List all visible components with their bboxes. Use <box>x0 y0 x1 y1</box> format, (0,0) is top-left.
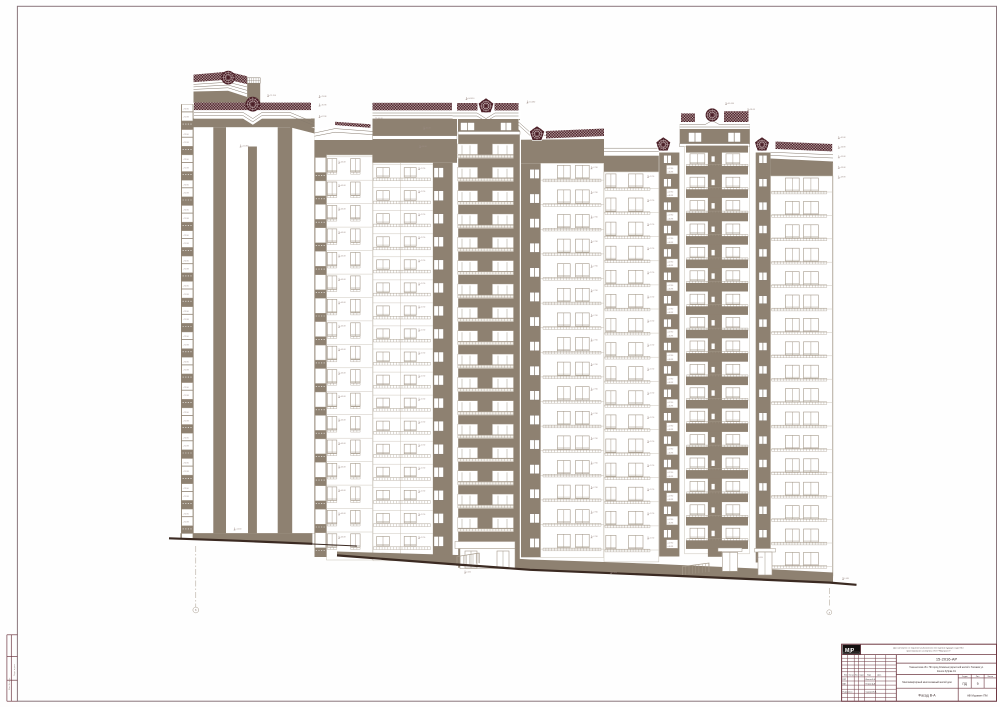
svg-text:+47.90: +47.90 <box>667 379 673 381</box>
svg-text:+43.08: +43.08 <box>340 279 346 281</box>
svg-text:+72.90: +72.90 <box>183 362 190 364</box>
svg-text:+2.700: +2.700 <box>593 389 598 391</box>
svg-text:+71.98: +71.98 <box>183 370 190 372</box>
svg-text:Петров Д.А.: Петров Д.А. <box>866 682 876 685</box>
svg-text:+2.700: +2.700 <box>593 216 598 218</box>
svg-text:Данный чертеж не подлежит разм: Данный чертеж не подлежит размножению бе… <box>893 646 964 649</box>
svg-text:+53.08: +53.08 <box>840 167 846 169</box>
svg-text:Кошли Зубрва Ол: Кошли Зубрва Ол <box>937 671 957 673</box>
svg-text:+70.98: +70.98 <box>321 104 327 106</box>
svg-text:+61.080: +61.080 <box>528 101 535 103</box>
svg-text:+2.700: +2.700 <box>420 306 425 308</box>
svg-text:№док: №док <box>859 674 864 677</box>
svg-text:+2.700: +2.700 <box>593 167 598 169</box>
svg-text:+2.700: +2.700 <box>593 339 598 341</box>
svg-text:+71.98: +71.98 <box>183 522 190 524</box>
svg-text:+2.700: +2.700 <box>420 399 425 401</box>
svg-text:+2.700: +2.700 <box>420 329 425 331</box>
svg-text:+46.98: +46.98 <box>667 499 673 501</box>
svg-text:проектирования экспертизы ООО: проектирования экспертизы ООО «Мирпроект… <box>906 651 951 653</box>
svg-text:М|Р: М|Р <box>845 648 855 654</box>
svg-text:+46.98: +46.98 <box>667 523 673 525</box>
svg-text:+72.90: +72.90 <box>183 513 190 515</box>
svg-text:+47.90: +47.90 <box>667 542 673 544</box>
svg-text:+43.08: +43.08 <box>340 443 346 445</box>
svg-text:+2.700: +2.700 <box>649 513 654 515</box>
svg-text:Стадия: Стадия <box>962 676 968 678</box>
svg-text:+46.98: +46.98 <box>667 406 673 408</box>
svg-text:+47.90: +47.90 <box>667 191 673 193</box>
svg-text:+43.08: +43.08 <box>340 255 346 257</box>
svg-text:Иванов Б.Б.: Иванов Б.Б. <box>866 679 877 681</box>
svg-text:+61.08: +61.08 <box>425 127 431 129</box>
svg-text:+72.90: +72.90 <box>183 235 190 237</box>
svg-text:-0.850: -0.850 <box>612 572 617 574</box>
svg-text:+2.700: +2.700 <box>593 462 598 464</box>
svg-text:+72.90: +72.90 <box>183 437 190 439</box>
svg-text:+2.700: +2.700 <box>649 224 654 226</box>
svg-text:+2.700: +2.700 <box>593 266 598 268</box>
svg-text:+46.98: +46.98 <box>667 546 673 548</box>
svg-text:+46.98: +46.98 <box>667 172 673 174</box>
svg-text:+2.700: +2.700 <box>649 465 654 467</box>
svg-text:+71.98: +71.98 <box>183 446 190 448</box>
svg-text:+67.98: +67.98 <box>321 116 327 118</box>
svg-text:+58.08: +58.08 <box>421 146 427 148</box>
svg-text:+47.90: +47.90 <box>667 355 673 357</box>
svg-text:+71.98: +71.98 <box>183 294 190 296</box>
svg-text:Многоквартирный многоэтажный ж: Многоквартирный многоэтажный жилой дом <box>902 681 952 684</box>
svg-text:+64.08: +64.08 <box>377 118 383 120</box>
svg-text:+47.90: +47.90 <box>667 285 673 287</box>
svg-text:+43.08: +43.08 <box>340 419 346 421</box>
svg-text:+46.98: +46.98 <box>667 312 673 314</box>
svg-text:+47.90: +47.90 <box>667 425 673 427</box>
svg-text:+2.700: +2.700 <box>593 487 598 489</box>
svg-text:Лист: Лист <box>976 676 980 678</box>
svg-text:+43.08: +43.08 <box>340 302 346 304</box>
svg-text:+2.700: +2.700 <box>649 345 654 347</box>
svg-text:+46.98: +46.98 <box>667 195 673 197</box>
svg-text:+71.98: +71.98 <box>183 243 190 245</box>
svg-text:+71.98: +71.98 <box>183 344 190 346</box>
svg-text:+71.98: +71.98 <box>183 420 190 422</box>
svg-text:+47.90: +47.90 <box>667 519 673 521</box>
svg-text:+56.98: +56.98 <box>840 147 846 149</box>
svg-text:+2.700: +2.700 <box>649 393 654 395</box>
svg-text:9: 9 <box>977 682 979 686</box>
svg-text:+2.700: +2.700 <box>649 441 654 443</box>
svg-text:+55.08: +55.08 <box>840 156 846 158</box>
svg-text:+43.08: +43.08 <box>340 349 346 351</box>
svg-text:+2.700: +2.700 <box>593 438 598 440</box>
svg-text:+72.90: +72.90 <box>183 109 190 111</box>
svg-text:+2.700: +2.700 <box>593 290 598 292</box>
svg-text:+46.98: +46.98 <box>667 335 673 337</box>
svg-text:+46.98: +46.98 <box>667 242 673 244</box>
svg-text:+71.98: +71.98 <box>183 167 190 169</box>
svg-text:+47.90: +47.90 <box>667 215 673 217</box>
svg-text:+71.98: +71.98 <box>183 117 190 119</box>
svg-text:Кол.уч: Кол.уч <box>849 675 854 677</box>
svg-text:+47.90: +47.90 <box>667 402 673 404</box>
svg-text:+47.90: +47.90 <box>667 332 673 334</box>
svg-text:+47.90: +47.90 <box>667 496 673 498</box>
svg-text:+2.700: +2.700 <box>649 320 654 322</box>
svg-text:+73.08: +73.08 <box>321 96 327 98</box>
svg-text:+71.98: +71.98 <box>183 471 190 473</box>
svg-text:+2.700: +2.700 <box>593 413 598 415</box>
svg-text:+2.700: +2.700 <box>649 537 654 539</box>
svg-text:+2.700: +2.700 <box>649 176 654 178</box>
svg-text:+47.90: +47.90 <box>667 449 673 451</box>
svg-text:+43.08: +43.08 <box>340 466 346 468</box>
svg-text:Ташкентская обл. НК город Олма: Ташкентская обл. НК город Олмалык (окрес… <box>909 666 984 669</box>
svg-text:+24.080: +24.080 <box>242 145 249 147</box>
svg-text:+71.98: +71.98 <box>183 496 190 498</box>
svg-text:+2.700: +2.700 <box>420 537 425 539</box>
svg-text:Листов: Листов <box>988 676 994 678</box>
svg-text:+2.700: +2.700 <box>420 352 425 354</box>
svg-text:+46.98: +46.98 <box>667 265 673 267</box>
svg-text:+71.98: +71.98 <box>183 319 190 321</box>
svg-text:+43.08: +43.08 <box>340 373 346 375</box>
svg-text:+47.90: +47.90 <box>667 308 673 310</box>
svg-text:+43.08: +43.08 <box>340 185 346 187</box>
svg-text:+2.700: +2.700 <box>420 445 425 447</box>
svg-text:+2.700: +2.700 <box>420 491 425 493</box>
svg-text:+2.700: +2.700 <box>593 241 598 243</box>
svg-text:+46.98: +46.98 <box>667 382 673 384</box>
svg-text:+2.700: +2.700 <box>420 191 425 193</box>
svg-text:+72.90: +72.90 <box>183 134 190 136</box>
svg-text:+43.08: +43.08 <box>340 326 346 328</box>
svg-text:Лист: Лист <box>855 675 859 677</box>
svg-text:+75.150: +75.150 <box>269 95 276 97</box>
svg-text:+2.700: +2.700 <box>649 417 654 419</box>
svg-text:+72.90: +72.90 <box>183 159 190 161</box>
svg-text:+72.90: +72.90 <box>183 210 190 212</box>
svg-text:+72.90: +72.90 <box>183 260 190 262</box>
svg-text:+2.700: +2.700 <box>593 315 598 317</box>
svg-text:+2.700: +2.700 <box>593 192 598 194</box>
svg-text:+72.90: +72.90 <box>183 311 190 313</box>
svg-text:+1.000: +1.000 <box>236 528 242 530</box>
svg-text:+58.08: +58.08 <box>749 109 755 111</box>
svg-text:+46.98: +46.98 <box>667 289 673 291</box>
svg-text:+2.700: +2.700 <box>649 369 654 371</box>
svg-text:+2.700: +2.700 <box>420 514 425 516</box>
svg-text:+72.90: +72.90 <box>183 286 190 288</box>
svg-text:Подп. и дата: Подп. и дата <box>14 663 16 676</box>
svg-text:+43.08: +43.08 <box>340 490 346 492</box>
svg-text:+2.700: +2.700 <box>649 272 654 274</box>
svg-text:+43.08: +43.08 <box>340 232 346 234</box>
svg-text:-0.450: -0.450 <box>466 571 471 573</box>
svg-text:+72.90: +72.90 <box>183 184 190 186</box>
svg-text:+46.98: +46.98 <box>667 452 673 454</box>
svg-text:+72.90: +72.90 <box>183 336 190 338</box>
svg-text:+2.700: +2.700 <box>420 237 425 239</box>
svg-text:Дата: Дата <box>878 675 882 677</box>
svg-text:+2.700: +2.700 <box>649 248 654 250</box>
svg-text:-0.550: -0.550 <box>758 557 763 559</box>
svg-text:+43.08: +43.08 <box>340 396 346 398</box>
svg-text:+64.650: +64.650 <box>467 98 474 100</box>
svg-text:Разработал: Разработал <box>843 691 853 693</box>
svg-text:+2.700: +2.700 <box>649 296 654 298</box>
svg-text:Подп: Подп <box>867 675 871 677</box>
svg-text:-1.080: -1.080 <box>844 578 849 580</box>
svg-text:+71.98: +71.98 <box>183 395 190 397</box>
svg-text:+61.08: +61.08 <box>840 137 846 139</box>
svg-text:+2.700: +2.700 <box>420 260 425 262</box>
svg-text:+2.700: +2.700 <box>420 422 425 424</box>
svg-text:+71.98: +71.98 <box>183 269 190 271</box>
svg-text:+2.700: +2.700 <box>593 512 598 514</box>
svg-text:+71.98: +71.98 <box>183 193 190 195</box>
svg-text:+2.700: +2.700 <box>649 200 654 202</box>
svg-text:+2.700: +2.700 <box>420 168 425 170</box>
svg-text:+47.90: +47.90 <box>667 472 673 474</box>
svg-text:+71.98: +71.98 <box>183 142 190 144</box>
svg-text:+71.98: +71.98 <box>183 218 190 220</box>
svg-text:+2.700: +2.700 <box>649 489 654 491</box>
svg-text:+43.08: +43.08 <box>340 162 346 164</box>
svg-text:+47.90: +47.90 <box>667 238 673 240</box>
svg-text:+72.90: +72.90 <box>183 412 190 414</box>
svg-text:15-2016-АР: 15-2016-АР <box>936 657 958 662</box>
svg-text:+2.700: +2.700 <box>420 468 425 470</box>
svg-text:Фасад В-А: Фасад В-А <box>918 694 936 698</box>
svg-text:+61.080: +61.080 <box>727 103 734 105</box>
svg-text:Инв. № подл.: Инв. № подл. <box>8 677 11 690</box>
svg-text:+46.98: +46.98 <box>667 429 673 431</box>
svg-text:АФ Мурамет ПМ: АФ Мурамет ПМ <box>967 694 988 698</box>
svg-text:+47.90: +47.90 <box>667 168 673 170</box>
svg-text:+43.08: +43.08 <box>340 208 346 210</box>
svg-text:Сидоров А.А.: Сидоров А.А. <box>866 690 878 693</box>
svg-text:+43.08: +43.08 <box>340 513 346 515</box>
svg-text:+46.98: +46.98 <box>667 218 673 220</box>
svg-text:+72.90: +72.90 <box>183 463 190 465</box>
svg-text:+2.700: +2.700 <box>593 364 598 366</box>
svg-text:+2.700: +2.700 <box>420 283 425 285</box>
svg-text:+2.700: +2.700 <box>593 536 598 538</box>
svg-text:+47.90: +47.90 <box>667 262 673 264</box>
svg-text:+46.98: +46.98 <box>667 476 673 478</box>
svg-text:+72.90: +72.90 <box>183 387 190 389</box>
svg-text:+2.700: +2.700 <box>420 375 425 377</box>
svg-text:+49.98: +49.98 <box>840 177 846 179</box>
svg-text:+43.08: +43.08 <box>340 537 346 539</box>
svg-text:+2.700: +2.700 <box>420 214 425 216</box>
svg-text:+46.98: +46.98 <box>667 359 673 361</box>
svg-text:+72.90: +72.90 <box>183 488 190 490</box>
